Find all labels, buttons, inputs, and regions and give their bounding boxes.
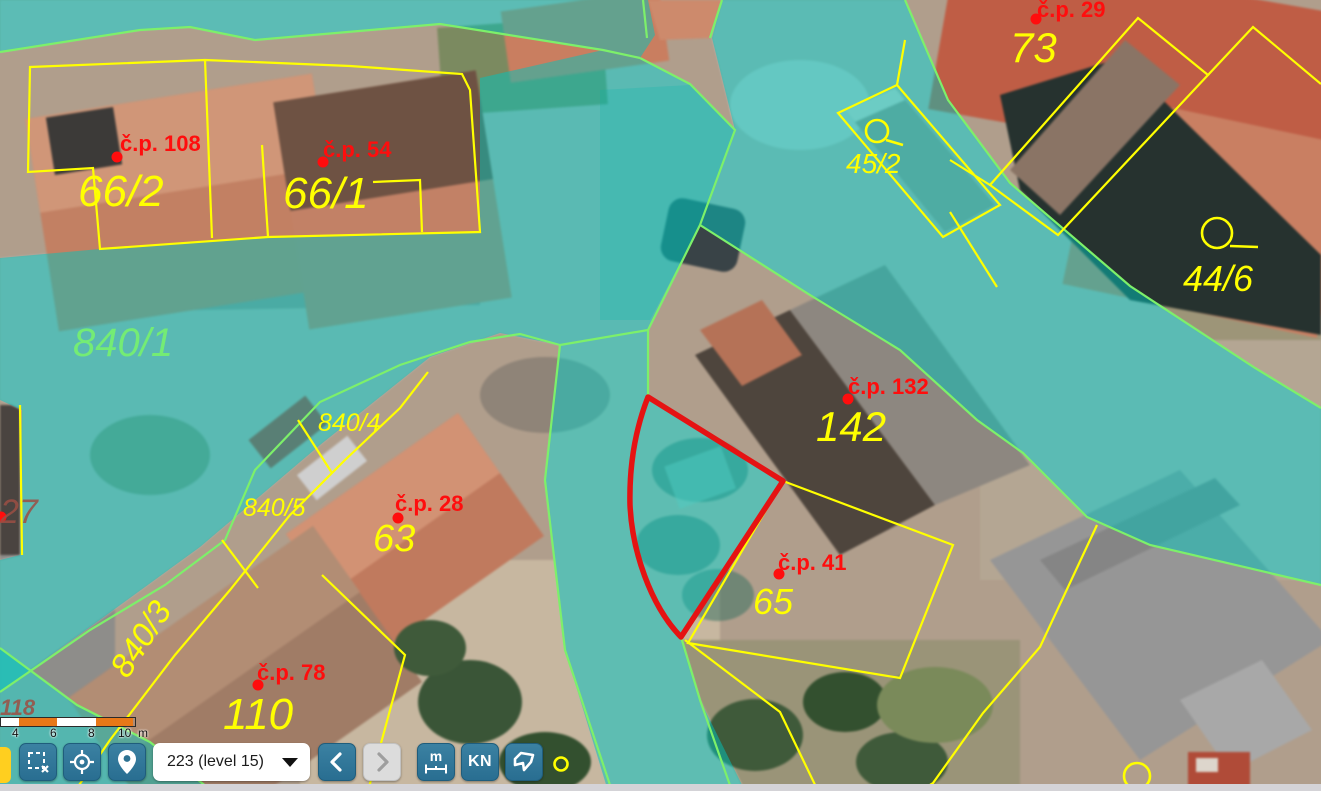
- parcel-label-45-2: 45/2: [846, 148, 901, 179]
- parcel-label-142: 142: [816, 403, 886, 450]
- house-number-label-41: č.p. 41: [778, 550, 846, 575]
- parcel-label-840-4: 840/4: [318, 409, 381, 437]
- marker-button[interactable]: [108, 743, 146, 781]
- scale-tick: 6: [50, 726, 57, 740]
- parcel-label-73: 73: [1010, 24, 1057, 71]
- house-number-label-54: č.p. 54: [323, 137, 392, 162]
- select-area-icon: [25, 749, 51, 775]
- measure-icon: m: [422, 748, 450, 776]
- measure-button[interactable]: m: [417, 743, 455, 781]
- chevron-left-icon: [326, 751, 348, 773]
- scale-tick: 4: [12, 726, 19, 740]
- chevron-right-icon: [371, 751, 393, 773]
- house-number-label-78: č.p. 78: [257, 660, 325, 685]
- parcel-label-63: 63: [373, 518, 415, 560]
- scale-tick: 10: [118, 726, 131, 740]
- parcel-label-65: 65: [753, 581, 794, 622]
- parcel-label-840-1: 840/1: [73, 321, 173, 365]
- edge-panel-handle[interactable]: [0, 747, 11, 783]
- select-area-button[interactable]: [19, 743, 57, 781]
- forward-button[interactable]: [363, 743, 401, 781]
- back-button[interactable]: [318, 743, 356, 781]
- parcel-label-66-2: 66/2: [78, 167, 164, 216]
- locate-button[interactable]: [63, 743, 101, 781]
- svg-text:m: m: [430, 748, 442, 764]
- kn-label: KN: [468, 753, 492, 771]
- parcel-label-44-6: 44/6: [1183, 258, 1254, 299]
- parcel-label-66-1: 66/1: [283, 169, 369, 218]
- house-number-label-28: č.p. 28: [395, 491, 463, 516]
- scale-tick: 8: [88, 726, 95, 740]
- kn-button[interactable]: KN: [461, 743, 499, 781]
- cadastral-map-canvas[interactable]: č.p. 108 66/2 č.p. 54 66/1 840/1 840/4 8…: [0, 0, 1321, 791]
- house-number-label-29: č.p. 29: [1037, 0, 1105, 22]
- parcel-label-840-5: 840/5: [243, 494, 306, 522]
- window-bottom-strip: [0, 784, 1321, 791]
- layer-level-select[interactable]: 223 (level 15): [153, 743, 310, 781]
- crosshair-icon: [68, 748, 96, 776]
- map-pin-icon: [115, 749, 139, 775]
- house-number-label-132: č.p. 132: [848, 374, 929, 399]
- house-number-label-108: č.p. 108: [120, 131, 201, 156]
- parcel-label-27-partial: 27: [0, 493, 39, 531]
- polygon-icon: [511, 749, 537, 775]
- parcel-label-110: 110: [223, 690, 294, 739]
- polygon-button[interactable]: [505, 743, 543, 781]
- scale-unit: m: [138, 726, 148, 740]
- map-viewport[interactable]: č.p. 108 66/2 č.p. 54 66/1 840/1 840/4 8…: [0, 0, 1321, 791]
- scale-bar-ticks: 4 6 8 10 m: [0, 726, 160, 742]
- chevron-down-icon: [282, 758, 298, 767]
- layer-level-value: 223 (level 15): [167, 753, 282, 771]
